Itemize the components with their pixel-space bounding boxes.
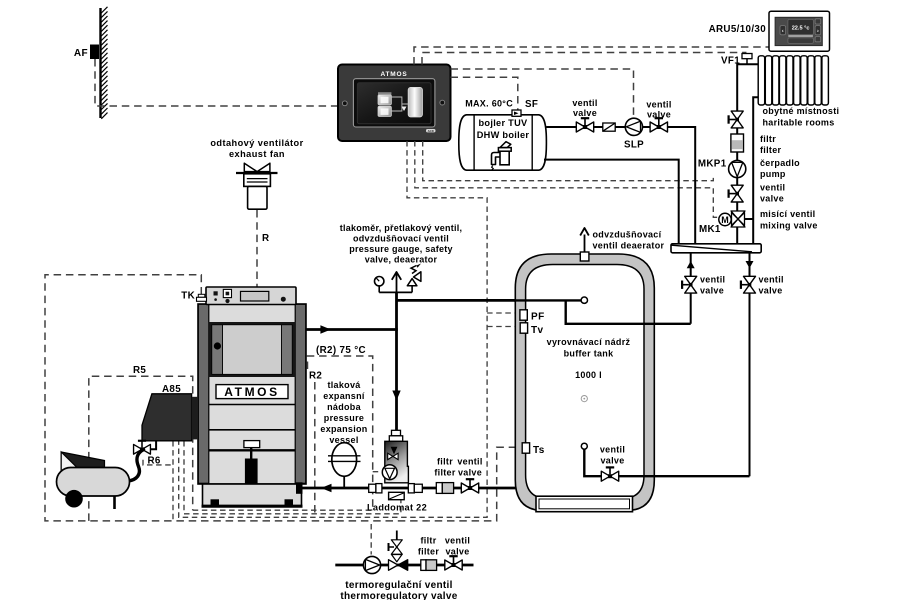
svg-text:R6: R6 bbox=[148, 456, 161, 467]
svg-text:22.5 °c: 22.5 °c bbox=[792, 26, 810, 32]
svg-text:valve: valve bbox=[573, 108, 597, 118]
svg-text:ventil: ventil bbox=[600, 445, 625, 455]
svg-text:odvzdušňovací: odvzdušňovací bbox=[593, 230, 662, 240]
svg-text:exhaust fan: exhaust fan bbox=[229, 149, 285, 159]
svg-text:filter: filter bbox=[418, 547, 440, 557]
svg-text:expansní: expansní bbox=[323, 391, 365, 401]
svg-text:ARU5/10/30: ARU5/10/30 bbox=[709, 24, 767, 35]
svg-text:MAX. 60°C: MAX. 60°C bbox=[465, 98, 513, 108]
svg-text:M: M bbox=[721, 215, 729, 225]
svg-text:tlaková: tlaková bbox=[327, 380, 361, 390]
svg-text:misící ventil: misící ventil bbox=[760, 209, 815, 219]
svg-text:filter: filter bbox=[434, 468, 456, 478]
svg-text:ventil: ventil bbox=[700, 275, 725, 285]
svg-text:buffer tank: buffer tank bbox=[564, 349, 614, 359]
svg-text:R2: R2 bbox=[309, 371, 322, 382]
svg-text:pump: pump bbox=[760, 169, 786, 179]
svg-text:thermoregulatory valve: thermoregulatory valve bbox=[340, 591, 457, 600]
svg-text:(R2) 75 °C: (R2) 75 °C bbox=[316, 345, 366, 356]
svg-text:valve: valve bbox=[760, 194, 784, 204]
svg-text:ACD: ACD bbox=[428, 129, 434, 133]
svg-text:haritable rooms: haritable rooms bbox=[763, 117, 835, 127]
svg-text:pressure: pressure bbox=[324, 413, 364, 423]
svg-text:SF: SF bbox=[525, 99, 538, 110]
svg-text:ATMOS: ATMOS bbox=[381, 71, 408, 78]
svg-text:MK1: MK1 bbox=[699, 224, 721, 235]
svg-text:filter: filter bbox=[760, 145, 782, 155]
svg-text:valve: valve bbox=[445, 547, 469, 557]
svg-text:obytné místnosti: obytné místnosti bbox=[763, 106, 840, 116]
svg-text:ventil: ventil bbox=[759, 275, 784, 285]
svg-text:bojler TUV: bojler TUV bbox=[479, 118, 529, 128]
svg-text:valve, deaerator: valve, deaerator bbox=[365, 255, 438, 265]
svg-text:tlakoměr, přetlakový ventil,: tlakoměr, přetlakový ventil, bbox=[340, 223, 463, 233]
svg-text:ventil: ventil bbox=[445, 536, 470, 546]
svg-text:Tv: Tv bbox=[531, 325, 544, 336]
svg-text:1000 l: 1000 l bbox=[575, 370, 602, 380]
svg-text:ATMOS: ATMOS bbox=[224, 385, 279, 399]
svg-text:pressure gauge, safety: pressure gauge, safety bbox=[349, 244, 453, 254]
svg-text:ventil: ventil bbox=[457, 457, 482, 467]
svg-text:mixing valve: mixing valve bbox=[760, 221, 818, 231]
svg-text:R: R bbox=[262, 233, 269, 244]
svg-text:Laddomat 22: Laddomat 22 bbox=[367, 503, 427, 513]
svg-text:expansion: expansion bbox=[320, 424, 367, 434]
svg-text:A85: A85 bbox=[162, 384, 181, 395]
svg-text:valve: valve bbox=[700, 286, 724, 296]
svg-text:DHW boiler: DHW boiler bbox=[477, 130, 530, 140]
svg-text:valve: valve bbox=[759, 286, 783, 296]
svg-text:filtr: filtr bbox=[760, 134, 776, 144]
svg-text:MKP1: MKP1 bbox=[698, 159, 727, 170]
svg-text:termoregulační ventil: termoregulační ventil bbox=[345, 580, 452, 591]
svg-text:filtr: filtr bbox=[421, 536, 437, 546]
svg-text:valve: valve bbox=[647, 110, 671, 120]
svg-text:čerpadlo: čerpadlo bbox=[760, 158, 800, 168]
svg-text:PF: PF bbox=[531, 312, 545, 323]
svg-text:SLP: SLP bbox=[624, 140, 644, 151]
svg-text:Ts: Ts bbox=[533, 445, 545, 456]
svg-text:TK: TK bbox=[181, 290, 195, 301]
svg-text:filtr: filtr bbox=[437, 457, 453, 467]
svg-text:valve: valve bbox=[458, 468, 482, 478]
svg-text:AF: AF bbox=[74, 48, 88, 59]
svg-text:vyrovnávací nádrž: vyrovnávací nádrž bbox=[547, 337, 631, 347]
svg-text:valve: valve bbox=[600, 456, 624, 466]
svg-text:›: › bbox=[817, 28, 819, 34]
svg-text:odtahový ventilátor: odtahový ventilátor bbox=[210, 138, 303, 148]
svg-text:ventil deaerator: ventil deaerator bbox=[593, 241, 665, 251]
svg-text:R5: R5 bbox=[133, 365, 146, 376]
svg-text:‹: ‹ bbox=[782, 28, 784, 34]
svg-text:ventil: ventil bbox=[646, 100, 671, 110]
svg-text:ventil: ventil bbox=[572, 98, 597, 108]
svg-text:odvzdušňovací ventil: odvzdušňovací ventil bbox=[353, 234, 449, 244]
svg-text:nádoba: nádoba bbox=[327, 402, 361, 412]
svg-text:ventil: ventil bbox=[760, 183, 785, 193]
